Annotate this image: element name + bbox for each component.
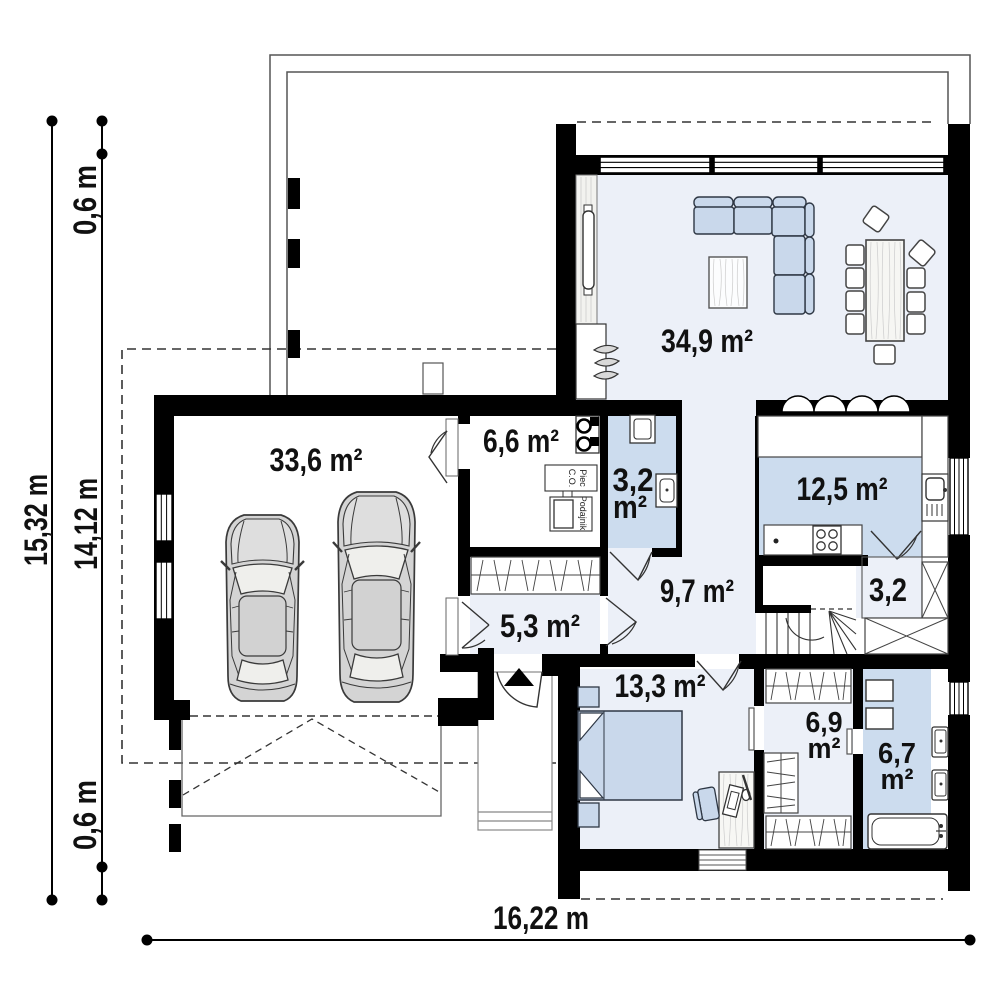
svg-text:16,22 m: 16,22 m	[493, 900, 589, 936]
svg-text:33,6 m²: 33,6 m²	[270, 442, 363, 478]
svg-text:12,5 m²: 12,5 m²	[797, 471, 888, 507]
svg-text:0,6 m: 0,6 m	[67, 165, 103, 235]
svg-text:m²: m²	[808, 733, 841, 765]
svg-text:9,7 m²: 9,7 m²	[660, 573, 734, 609]
svg-text:6,6 m²: 6,6 m²	[483, 423, 559, 459]
svg-text:C.O.: C.O.	[567, 469, 577, 488]
svg-text:Piec: Piec	[578, 469, 588, 487]
svg-text:15,32 m: 15,32 m	[18, 474, 54, 566]
svg-text:13,3 m²: 13,3 m²	[615, 668, 706, 704]
svg-text:5,3 m²: 5,3 m²	[500, 608, 580, 644]
svg-text:m²: m²	[613, 489, 647, 525]
svg-text:3,2: 3,2	[869, 572, 907, 608]
svg-text:14,12 m: 14,12 m	[68, 478, 104, 570]
svg-text:Podajnik: Podajnik	[578, 496, 588, 531]
svg-text:m²: m²	[881, 764, 914, 796]
svg-text:34,9 m²: 34,9 m²	[661, 323, 753, 359]
svg-text:0,6 m: 0,6 m	[67, 780, 103, 850]
